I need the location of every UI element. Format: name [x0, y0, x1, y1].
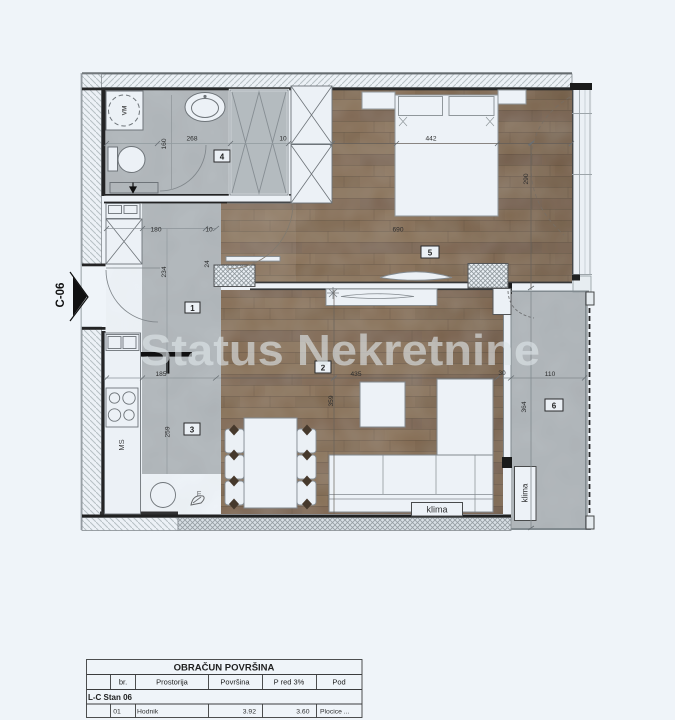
svg-text:P red 3%: P red 3% — [274, 678, 305, 687]
svg-text:Hodnik: Hodnik — [137, 709, 159, 716]
svg-text:364: 364 — [521, 401, 528, 412]
svg-text:10: 10 — [279, 136, 287, 143]
svg-text:Plocice ...: Plocice ... — [320, 709, 350, 716]
svg-text:1: 1 — [190, 304, 195, 313]
svg-text:690: 690 — [392, 227, 403, 234]
svg-text:290: 290 — [523, 173, 530, 184]
svg-text:01: 01 — [113, 709, 121, 716]
svg-text:234: 234 — [161, 266, 168, 277]
svg-text:Status Nekretnine: Status Nekretnine — [140, 326, 540, 375]
svg-text:3: 3 — [190, 426, 195, 435]
svg-text:F: F — [197, 489, 202, 498]
svg-text:Prostorija: Prostorija — [156, 678, 189, 687]
svg-text:klima: klima — [521, 483, 530, 502]
svg-text:Površina: Površina — [220, 678, 250, 687]
svg-text:C-06: C-06 — [55, 283, 67, 308]
svg-text:180: 180 — [150, 227, 161, 234]
svg-text:3.60: 3.60 — [296, 709, 309, 716]
svg-text:klima: klima — [426, 505, 447, 515]
svg-text:259: 259 — [165, 426, 172, 437]
svg-text:VM: VM — [122, 106, 129, 116]
svg-text:4: 4 — [220, 153, 225, 162]
svg-text:442: 442 — [425, 136, 436, 143]
svg-text:110: 110 — [545, 371, 556, 378]
svg-text:Pod: Pod — [332, 678, 345, 687]
svg-text:160: 160 — [161, 138, 168, 149]
svg-text:MS: MS — [117, 439, 126, 450]
svg-text:3.92: 3.92 — [243, 709, 256, 716]
svg-text:359: 359 — [328, 395, 335, 406]
svg-text:br.: br. — [119, 678, 127, 687]
svg-text:5: 5 — [428, 249, 433, 258]
svg-text:OBRAČUN POVRŠINA: OBRAČUN POVRŠINA — [174, 662, 275, 674]
svg-text:6: 6 — [552, 402, 557, 411]
svg-text:10: 10 — [205, 227, 213, 234]
svg-text:L-C Stan 06: L-C Stan 06 — [88, 693, 133, 702]
svg-text:24: 24 — [204, 260, 211, 268]
svg-text:268: 268 — [186, 136, 197, 143]
